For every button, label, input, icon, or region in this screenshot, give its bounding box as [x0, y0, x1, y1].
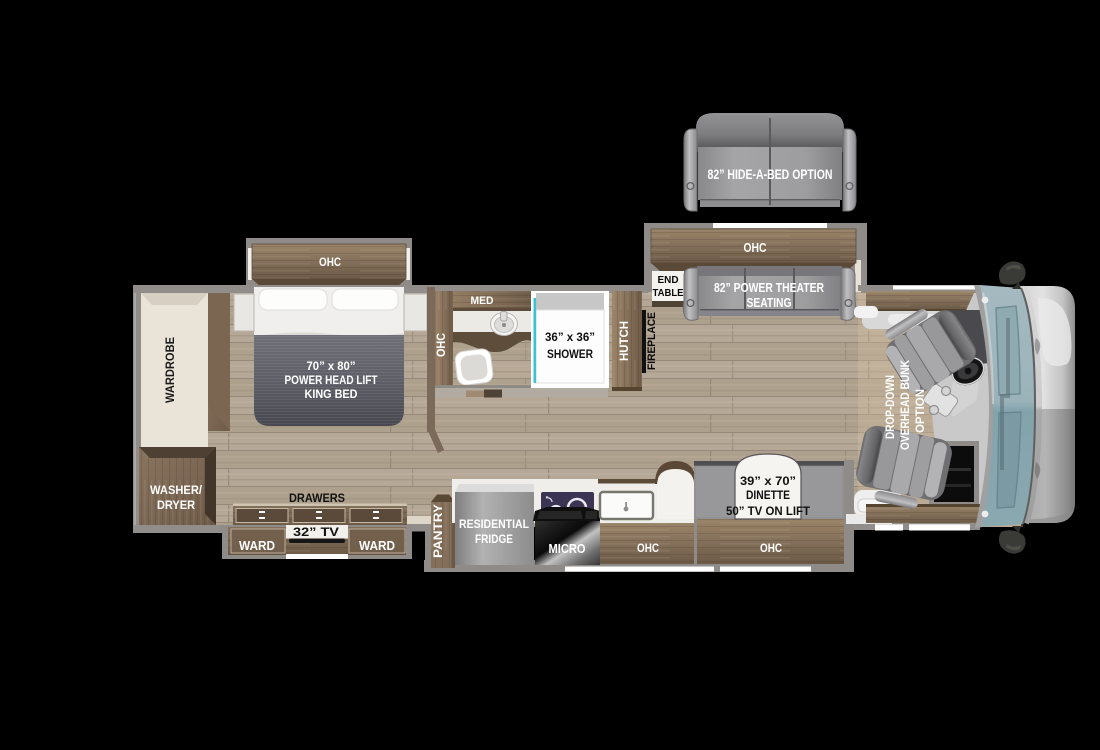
svg-text:OPTION: OPTION — [915, 389, 927, 433]
svg-text:36” x 36”: 36” x 36” — [545, 330, 595, 344]
svg-text:FRIDGE: FRIDGE — [475, 532, 513, 546]
svg-text:OVERHEAD BUNK: OVERHEAD BUNK — [900, 359, 912, 450]
svg-text:82” POWER THEATER: 82” POWER THEATER — [714, 280, 824, 295]
svg-text:PANTRY: PANTRY — [433, 504, 445, 558]
svg-text:HUTCH: HUTCH — [619, 321, 631, 361]
svg-text:32” TV: 32” TV — [293, 527, 339, 539]
svg-text:END: END — [658, 274, 679, 286]
svg-text:OHC: OHC — [436, 333, 448, 357]
svg-text:82” HIDE-A-BED OPTION: 82” HIDE-A-BED OPTION — [708, 166, 833, 182]
svg-text:OHC: OHC — [760, 541, 782, 555]
svg-text:POWER HEAD LIFT: POWER HEAD LIFT — [285, 375, 378, 387]
svg-text:DRYER: DRYER — [157, 500, 196, 512]
svg-text:OHC: OHC — [319, 255, 341, 269]
svg-text:SHOWER: SHOWER — [547, 347, 593, 361]
svg-text:MICRO: MICRO — [549, 542, 586, 556]
svg-text:39” x 70”: 39” x 70” — [740, 474, 796, 488]
svg-text:OHC: OHC — [637, 541, 659, 555]
svg-text:TABLE: TABLE — [653, 287, 684, 299]
svg-text:WARD: WARD — [359, 539, 395, 553]
svg-text:50” TV ON LIFT: 50” TV ON LIFT — [726, 504, 811, 518]
svg-text:DROP-DOWN: DROP-DOWN — [885, 375, 897, 439]
svg-text:WARD: WARD — [239, 539, 275, 553]
svg-text:OHC: OHC — [744, 240, 767, 255]
svg-text:KING BED: KING BED — [305, 389, 358, 401]
svg-text:DRAWERS: DRAWERS — [289, 491, 345, 505]
svg-text:70” x 80”: 70” x 80” — [307, 361, 356, 373]
svg-text:FIREPLACE: FIREPLACE — [646, 312, 658, 370]
svg-text:MED: MED — [471, 295, 494, 307]
svg-text:SEATING: SEATING — [747, 295, 792, 310]
svg-text:RESIDENTIAL: RESIDENTIAL — [459, 517, 529, 531]
svg-text:WASHER/: WASHER/ — [150, 485, 203, 497]
svg-text:WARDROBE: WARDROBE — [163, 337, 177, 403]
svg-text:DINETTE: DINETTE — [746, 488, 790, 502]
